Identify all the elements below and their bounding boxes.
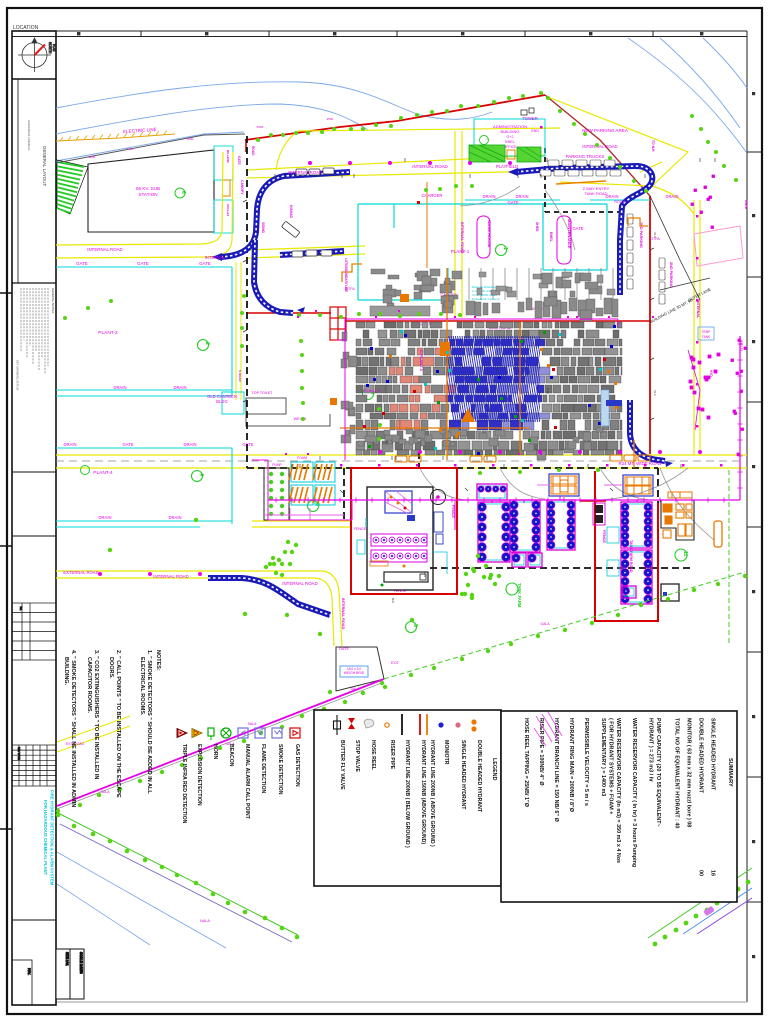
svg-text:EXTERNAL ROAD: EXTERNAL ROAD: [63, 570, 98, 575]
svg-text:FLAME DETECTION: FLAME DETECTION: [260, 744, 266, 794]
svg-text:HYD: HYD: [709, 370, 713, 377]
svg-text:5000: 5000: [127, 147, 134, 151]
svg-text:DRAIN: DRAIN: [515, 194, 528, 199]
svg-text:DOUBLE HEADED HYDRANT: DOUBLE HEADED HYDRANT: [476, 740, 482, 813]
svg-text:NEW PARKING AREA: NEW PARKING AREA: [582, 128, 629, 133]
svg-text:SIZE 1A1: SIZE 1A1: [65, 952, 69, 966]
svg-text:M-8: M-8: [391, 598, 395, 603]
svg-text:( FOR HYDRANT SYSTEMS + FOAM +: ( FOR HYDRANT SYSTEMS + FOAM +: [608, 718, 614, 814]
svg-text:MANUAL ALARM CALL POINT: MANUAL ALARM CALL POINT: [244, 744, 250, 820]
svg-text:ROAD: ROAD: [251, 146, 255, 156]
svg-text:HYDRANT LINE 200NB ( ABOVE GRO: HYDRANT LINE 200NB ( ABOVE GROUND ): [429, 740, 435, 847]
svg-text:RISER PIPE: RISER PIPE: [389, 740, 395, 770]
svg-text:FOAM: FOAM: [297, 456, 307, 460]
svg-text:5000: 5000: [187, 137, 194, 141]
svg-text:GATE: GATE: [199, 261, 211, 266]
svg-text:4. " SMOKE DETECTORS " SHALL N: 4. " SMOKE DETECTORS " SHALL NE INSTALLE…: [70, 650, 76, 807]
svg-text:16: 16: [710, 870, 716, 876]
svg-text:GATE: GATE: [507, 200, 518, 205]
svg-text:GATE: GATE: [744, 200, 748, 210]
svg-text:4500: 4500: [327, 117, 334, 121]
svg-text:PLANT-4: PLANT-4: [93, 470, 113, 476]
svg-text:PLANT-2: PLANT-2: [98, 330, 118, 336]
svg-text:FENCE: FENCE: [451, 505, 455, 518]
svg-text:TRIPLE INFRA RED DETECTION: TRIPLE INFRA RED DETECTION: [181, 744, 187, 824]
svg-text:FENCE: FENCE: [354, 527, 367, 531]
svg-text:INTERNAL ROAD: INTERNAL ROAD: [87, 247, 122, 252]
svg-text:B-45: B-45: [546, 388, 550, 394]
svg-text:31-0: 31-0: [653, 232, 657, 238]
svg-text:BUTTER FLY VALVE: BUTTER FLY VALVE: [339, 740, 345, 790]
svg-text:DRAIN: DRAIN: [482, 194, 495, 199]
svg-text:GATE: GATE: [137, 261, 149, 266]
svg-text:BILL2NG: BILL2NG: [226, 150, 230, 164]
svg-text:SMOKE DETECTION: SMOKE DETECTION: [277, 744, 283, 795]
svg-text:CHARGER: CHARGER: [422, 193, 443, 198]
svg-text:REV.: REV.: [27, 968, 31, 975]
svg-text:LOCATION: LOCATION: [13, 25, 39, 31]
svg-text:ROOM: ROOM: [614, 200, 625, 204]
svg-text:RISER: RISER: [364, 518, 368, 528]
svg-text:STOP VALVE: STOP VALVE: [354, 740, 360, 772]
svg-text:GALA: GALA: [100, 790, 110, 794]
svg-text:HYDRANT ): HYDRANT ) = 273 m3 / hr: [648, 718, 654, 783]
svg-text:TANK ROAD: TANK ROAD: [584, 191, 607, 196]
svg-text:STATION: STATION: [138, 192, 157, 197]
svg-text:2: 2: [204, 342, 210, 345]
svg-text:DRAIN: DRAIN: [168, 515, 181, 520]
svg-text:9: 9: [412, 624, 418, 627]
svg-text:TO N.H: TO N.H: [651, 140, 655, 152]
svg-text:KEY | DRAWING STATUS: KEY | DRAWING STATUS: [16, 360, 20, 391]
svg-text:BLDG: BLDG: [216, 399, 227, 404]
svg-text:HAZARDOUS CHEMICAL: HAZARDOUS CHEMICAL: [27, 120, 31, 151]
svg-text:TANK: TANK: [702, 335, 711, 339]
svg-text:DRAIN: DRAIN: [665, 194, 678, 199]
svg-text:MONITOR ( 63 mm x 32 mm nozzl: MONITOR ( 63 mm x 32 mm nozzl bore ) 08: [686, 718, 692, 827]
svg-text:SINGLE HEADED HYDRANT: SINGLE HEADED HYDRANT: [710, 718, 716, 791]
svg-text:HYDRANT RING MAIN: HYDRANT RING MAIN = 200NB / 8”Ø: [568, 718, 574, 812]
svg-text:SIDING: SIDING: [261, 222, 265, 234]
svg-text:SHED: SHED: [535, 222, 539, 232]
svg-text:C-PLANT-3: C-PLANT-3: [419, 350, 424, 372]
svg-text:PUMP: PUMP: [272, 463, 281, 467]
svg-text:GATE: GATE: [572, 226, 583, 231]
svg-text:2. " CALL POINTS " TO BE INSTA: 2. " CALL POINTS " TO BE INSTALLED ON TH…: [115, 650, 121, 798]
svg-text:1. " SMOKE DETECTORS " SHOULD: 1. " SMOKE DETECTORS " SHOULD BE ADDED I…: [146, 650, 152, 794]
svg-text:TOWER: TOWER: [522, 116, 538, 121]
svg-text:GATE: GATE: [242, 442, 253, 447]
svg-text:MONIOTR: MONIOTR: [443, 740, 449, 765]
svg-text:S ROAD: S ROAD: [238, 370, 242, 383]
svg-text:TANK FARM ROAD: TANK FARM ROAD: [629, 540, 633, 573]
svg-text:NALA: NALA: [200, 919, 210, 923]
svg-text:PARKING TRUCKS: PARKING TRUCKS: [566, 154, 605, 159]
svg-text:M-8: M-8: [423, 572, 427, 577]
svg-text:EXIT: EXIT: [391, 661, 400, 665]
svg-text:GENERAL LAYOUT: GENERAL LAYOUT: [42, 146, 47, 187]
svg-text:5000: 5000: [89, 155, 96, 159]
svg-text:3. " CO2 EXTINGUISHERS " TO BE: 3. " CO2 EXTINGUISHERS " TO BE INSTALLED…: [93, 650, 99, 779]
svg-text:END: END: [531, 129, 539, 133]
svg-text:CANOPY: CANOPY: [240, 180, 244, 195]
svg-text:INTERNAL ROAD: INTERNAL ROAD: [341, 598, 345, 630]
svg-text:KISHAD: KISHAD: [289, 205, 293, 219]
svg-text:PLAN: PLAN: [52, 44, 56, 51]
svg-text:GATE: GATE: [122, 442, 133, 447]
svg-text:PUMP CAPACITY (20 TO 55 EQUIVA: PUMP CAPACITY (20 TO 55 EQUIVALENT~: [655, 718, 661, 827]
svg-text:MAINTENANCE: MAINTENANCE: [567, 219, 572, 249]
svg-text:G+2: G+2: [507, 135, 514, 139]
svg-text:DRAIN: DRAIN: [63, 442, 76, 447]
svg-text:FOR HAZARDOUS CHEMICAL PLANT: FOR HAZARDOUS CHEMICAL PLANT: [43, 800, 48, 876]
svg-text:GAS DETECTION: GAS DETECTION: [294, 744, 300, 787]
svg-text:FENCE: FENCE: [602, 530, 606, 543]
svg-text:WATER RESERVOIR CAPACITY (In m: WATER RESERVOIR CAPACITY (In m3) = 350 m…: [615, 718, 621, 863]
svg-text:DRAIN: DRAIN: [173, 385, 186, 390]
svg-text:WATER RESERVOIR CAPACITY ( In: WATER RESERVOIR CAPACITY ( In hr) = 3 ho…: [631, 718, 637, 867]
svg-text:INTERNAL ROAD: INTERNAL ROAD: [460, 222, 464, 254]
svg-text:LSTGBOUNDARYLINE: LSTGBOUNDARYLINE: [344, 258, 348, 292]
svg-text:Tel.: Tel.: [19, 606, 23, 611]
svg-text:HOSE REEL TAPPING =: HOSE REEL TAPPING = 25NB/ 1”Ø: [523, 718, 529, 807]
svg-text:HORN: HORN: [212, 744, 218, 760]
svg-text:INTERNAL ROAD: INTERNAL ROAD: [288, 170, 322, 175]
svg-text:DOUBLE HEADED HYDRANT: DOUBLE HEADED HYDRANT: [698, 718, 704, 794]
svg-text:GENERAL NOTES: GENERAL NOTES: [51, 288, 55, 313]
svg-text:BUILDING: BUILDING: [501, 129, 520, 134]
svg-text:REV DATE: REV DATE: [17, 747, 21, 760]
svg-text:DRAIN: DRAIN: [113, 385, 126, 390]
svg-text:INTERNAL: INTERNAL: [205, 255, 226, 260]
svg-text:INTERNAL ROAD: INTERNAL ROAD: [282, 581, 317, 586]
svg-text:DOORS.: DOORS.: [108, 657, 114, 679]
svg-text:2ND PARKING: 2ND PARKING: [669, 262, 673, 288]
svg-text:LEGEND: LEGEND: [491, 758, 497, 781]
svg-text:BHEL: BHEL: [549, 232, 553, 243]
svg-text:TEMP: TEMP: [702, 330, 711, 334]
svg-text:66 KV. SUB: 66 KV. SUB: [136, 186, 160, 191]
svg-text:TOP TOILET: TOP TOILET: [252, 391, 274, 395]
svg-text:PERMISSIBLE VELOCITY: PERMISSIBLE VELOCITY = 5 m / s: [583, 718, 589, 806]
svg-text:BUILDING.: BUILDING.: [63, 657, 69, 686]
svg-text:ELECTRICAL ROOMS.: ELECTRICAL ROOMS.: [139, 657, 145, 716]
svg-text:18.0 x 3.0: 18.0 x 3.0: [347, 667, 361, 671]
svg-text:SUMMARY: SUMMARY: [727, 758, 733, 787]
svg-text:TOTAL NO OF EQUIVALENT HYDRANT: TOTAL NO OF EQUIVALENT HYDRANT : 40: [674, 718, 680, 828]
svg-text:2G11-H3: 2G11-H3: [226, 204, 230, 216]
svg-text:WARE HOUSE: WARE HOUSE: [487, 220, 492, 248]
svg-text:PLANT-3: PLANT-3: [364, 388, 381, 393]
svg-text:GATE: GATE: [339, 647, 350, 651]
svg-text:FIRE HYDRANT DETECTION & ALARM: FIRE HYDRANT DETECTION & ALARM SYSTEM: [50, 790, 55, 886]
svg-text:BEACON: BEACON: [228, 744, 234, 767]
svg-text:6: 6: [180, 191, 186, 194]
svg-text:PLAYFIELD: PLAYFIELD: [496, 164, 518, 169]
svg-text:GATE: GATE: [237, 156, 241, 165]
svg-text:SINGLE HEADED HYDRANT: SINGLE HEADED HYDRANT: [460, 740, 466, 810]
svg-text:NORTH: NORTH: [48, 42, 52, 54]
svg-text:SUPPLEMENTARY ): SUPPLEMENTARY ) = 1400 m3: [600, 718, 606, 796]
svg-text:R24 MT. WIDE ROAD: R24 MT. WIDE ROAD: [619, 461, 662, 466]
svg-text:SALA: SALA: [248, 722, 257, 726]
svg-text:5000: 5000: [257, 125, 264, 129]
svg-text:GATE: GATE: [76, 261, 88, 266]
svg-text:INTERNAL: INTERNAL: [696, 300, 700, 319]
svg-text:OFFICE: OFFICE: [503, 145, 517, 149]
svg-text:DRAIN: DRAIN: [183, 442, 196, 447]
svg-text:11: 11: [682, 551, 688, 557]
svg-text:SCALE 1:1250: SCALE 1:1250: [79, 952, 83, 974]
svg-text:HYDRANT LINE 200NB ( BELOW GRO: HYDRANT LINE 200NB ( BELOW GROUND ): [404, 740, 410, 848]
svg-text:INTERNAL ROAD: INTERNAL ROAD: [582, 144, 617, 149]
svg-text:GALA: GALA: [540, 622, 550, 626]
svg-text:HOSE REEL: HOSE REEL: [370, 740, 376, 771]
svg-text:BHEL: BHEL: [505, 140, 514, 144]
svg-text:31-0: 31-0: [653, 390, 657, 396]
svg-text:1: 1: [502, 247, 508, 250]
svg-text:INTERNAL ROAD: INTERNAL ROAD: [153, 574, 188, 579]
svg-text:DRAIN: DRAIN: [98, 515, 111, 520]
svg-text:NOTES:: NOTES:: [155, 650, 161, 671]
svg-text:limited plot 4 of temp: limited plot 4 of temp: [472, 297, 500, 301]
svg-text:GALA: GALA: [350, 687, 360, 691]
svg-text:WEIGH BRID: WEIGH BRID: [344, 671, 365, 675]
svg-text:EXPLOSION DETECTION: EXPLOSION DETECTION: [196, 744, 202, 806]
svg-text:HYDRANT LINE 150NB (ABOVE GROU: HYDRANT LINE 150NB (ABOVE GROUND): [420, 740, 426, 844]
svg-text:00: 00: [698, 870, 704, 876]
svg-text:CAPACITOR ROOMS.: CAPACITOR ROOMS.: [86, 657, 92, 713]
